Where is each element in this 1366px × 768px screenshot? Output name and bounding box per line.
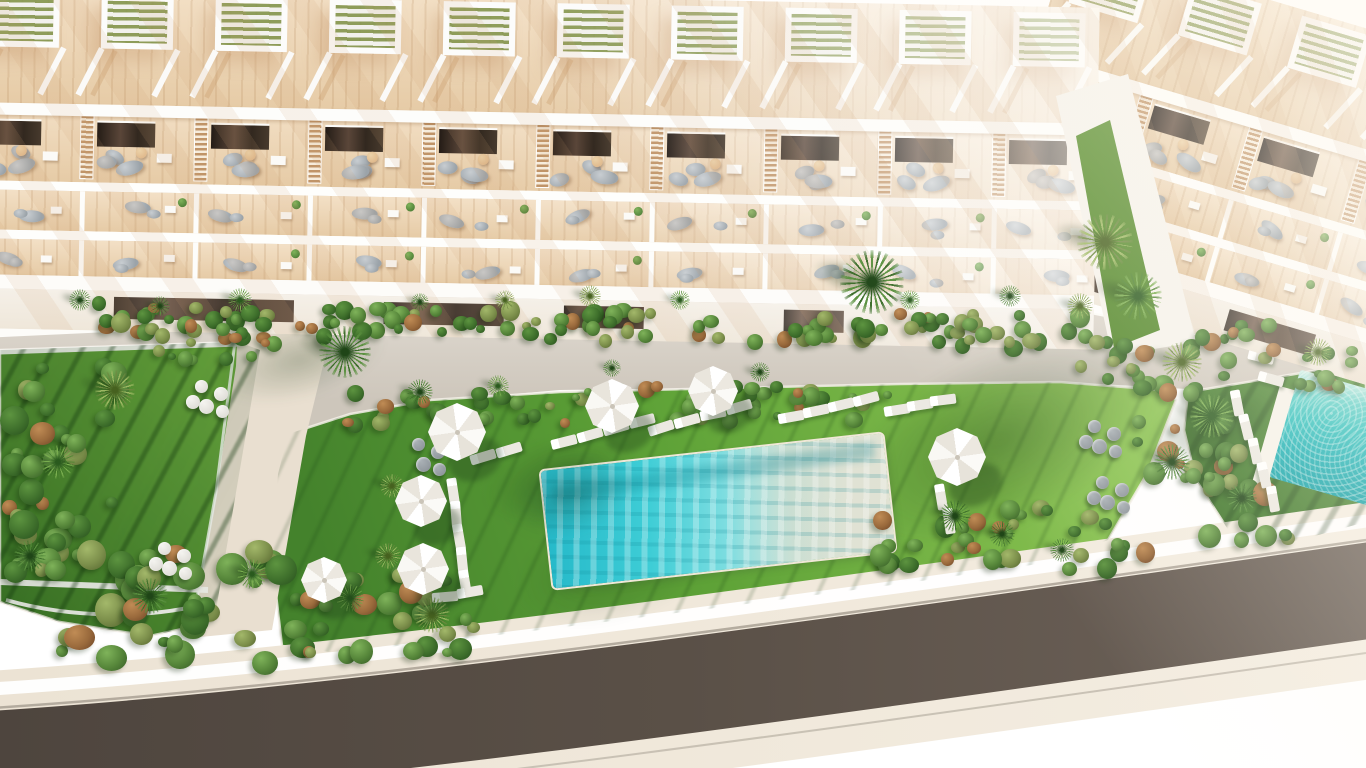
palm-canopy — [69, 289, 91, 311]
shrub — [770, 381, 784, 393]
pergola — [215, 0, 288, 52]
palm-tree — [411, 293, 429, 311]
shrub — [1198, 524, 1221, 548]
palm-canopy — [603, 359, 621, 377]
palm-tree — [750, 362, 770, 382]
egg-chair — [438, 161, 458, 174]
balcony-divider — [78, 240, 84, 280]
privacy-screen — [992, 134, 1005, 196]
shrub — [252, 651, 278, 675]
balcony-table — [1295, 234, 1308, 244]
egg-chair — [0, 162, 7, 178]
garden-pouf — [186, 395, 200, 409]
palm-tree — [1227, 483, 1257, 513]
shrub — [1132, 415, 1146, 429]
privacy-screen — [194, 118, 207, 180]
garden-pouf — [1117, 501, 1130, 514]
balcony-plant — [976, 213, 985, 222]
palm-tree — [69, 289, 91, 311]
garden-pouf — [179, 567, 192, 580]
shrub — [545, 402, 555, 410]
pergola-post-shadow — [1265, 72, 1302, 112]
palm-canopy — [1077, 214, 1133, 270]
balcony-chair — [243, 262, 257, 271]
shrub — [845, 412, 863, 427]
pergola-post — [987, 65, 1016, 114]
shrub — [1255, 525, 1277, 547]
palm-tree — [900, 290, 920, 310]
balcony-table — [733, 267, 744, 274]
shrub — [1000, 549, 1022, 567]
balcony-table — [281, 262, 292, 269]
privacy-screen — [536, 125, 549, 187]
balcony-chair — [462, 270, 476, 279]
balcony-chair — [587, 269, 601, 278]
parasol-pole — [421, 567, 426, 572]
shrub — [747, 334, 763, 350]
dining-table — [157, 154, 172, 163]
terrace-door — [553, 129, 611, 156]
shrub — [229, 333, 241, 344]
palm-tree — [132, 578, 168, 614]
dining-table — [727, 165, 742, 174]
balcony-plant — [862, 211, 871, 220]
pergola — [1178, 0, 1262, 55]
palm-canopy — [670, 290, 690, 310]
balcony-divider — [649, 202, 655, 242]
palm-tree — [579, 285, 601, 307]
garden-pouf — [1109, 445, 1122, 458]
shrub — [1234, 532, 1249, 548]
balcony-divider — [193, 193, 199, 233]
palm-tree — [1067, 293, 1093, 319]
palm-tree — [237, 559, 267, 589]
pergola-post — [151, 49, 180, 98]
shrub — [185, 319, 198, 332]
shrub — [703, 315, 719, 328]
balcony-daybed — [666, 214, 694, 233]
shrub — [464, 317, 477, 330]
parasol-pole — [419, 499, 424, 504]
pergola-post-shadow — [0, 47, 4, 94]
shrub — [870, 544, 891, 566]
balcony-table — [1283, 283, 1296, 293]
pergola-post — [1323, 87, 1363, 129]
shrub — [975, 327, 992, 343]
parasol — [428, 403, 486, 461]
palm-canopy — [95, 370, 135, 410]
dining-table — [954, 169, 969, 178]
pergola — [329, 0, 402, 54]
shrub — [167, 635, 183, 652]
shrub — [1075, 360, 1087, 373]
palm-tree — [1154, 444, 1190, 480]
shrub — [219, 352, 233, 366]
balcony-divider — [306, 245, 312, 285]
palm-canopy — [150, 296, 170, 316]
balcony-divider — [420, 247, 426, 287]
balcony-chair — [679, 274, 693, 283]
palm-canopy — [14, 540, 46, 572]
pergola-post — [1360, 98, 1366, 140]
palm-tree — [1304, 338, 1332, 366]
shrub — [964, 335, 976, 345]
round-table — [591, 156, 602, 167]
shrub — [638, 329, 653, 343]
palm-tree — [670, 290, 690, 310]
shrub — [168, 353, 176, 360]
shrub — [932, 335, 946, 349]
shrub — [805, 330, 823, 346]
pergola — [671, 5, 744, 60]
palm-tree — [487, 375, 509, 397]
garden-pouf — [158, 542, 171, 555]
pergola — [899, 10, 972, 65]
palm-tree — [407, 379, 433, 405]
shrub — [437, 327, 447, 337]
daybed — [341, 164, 371, 181]
balcony-table — [40, 255, 51, 262]
balcony-divider — [1313, 279, 1329, 319]
pergola-post — [759, 60, 788, 109]
privacy-screen — [878, 131, 891, 193]
balcony-plant — [178, 198, 187, 207]
balcony-divider — [421, 198, 427, 238]
shrub — [30, 422, 55, 445]
balcony-daybed — [1004, 218, 1032, 237]
privacy-screen — [308, 121, 321, 183]
balcony-plant — [1305, 279, 1316, 290]
palm-tree — [1114, 272, 1162, 320]
pergola-post — [189, 49, 218, 98]
palm-canopy — [1154, 444, 1190, 480]
pergola-post — [873, 62, 902, 111]
palm-canopy — [989, 521, 1015, 547]
pergola-post — [75, 47, 104, 96]
egg-chair — [97, 155, 117, 169]
round-table — [367, 152, 378, 163]
garden-pouf — [412, 438, 425, 451]
balcony-divider — [1327, 232, 1343, 272]
pergola — [785, 8, 858, 63]
garden-pouf — [416, 457, 431, 472]
balcony-divider — [1204, 246, 1220, 286]
balcony-plant — [634, 207, 643, 216]
parasol-pole — [610, 404, 615, 409]
shrub — [904, 321, 919, 335]
palm-canopy — [487, 375, 509, 397]
palm-tree — [41, 445, 75, 479]
shrub — [1345, 357, 1357, 367]
round-table — [16, 145, 27, 156]
daybed — [1173, 149, 1204, 177]
garden-pouf — [199, 399, 214, 414]
parasol-pole — [711, 389, 716, 394]
shrub — [983, 549, 1002, 570]
shrub — [1097, 558, 1117, 579]
shrub — [1073, 548, 1089, 563]
balcony-chair — [474, 221, 488, 230]
garden-pouf — [1088, 420, 1101, 433]
shrub — [430, 305, 442, 317]
garden-pouf — [1092, 439, 1107, 454]
palm-tree — [228, 288, 252, 312]
balcony-daybed — [798, 224, 825, 237]
dining-table — [499, 160, 514, 169]
balcony-table — [497, 215, 508, 222]
balcony-table — [509, 266, 520, 273]
privacy-screen — [422, 123, 435, 185]
palm-canopy — [750, 362, 770, 382]
balcony-divider — [192, 242, 198, 282]
balcony-divider — [535, 200, 541, 240]
palm-canopy — [41, 445, 75, 479]
shrub — [313, 622, 329, 636]
garden-pouf — [1115, 483, 1129, 497]
balcony-table — [1076, 275, 1087, 282]
garden-pouf — [433, 463, 446, 476]
round-table — [1047, 165, 1058, 176]
shrub — [261, 339, 270, 347]
dining-table — [271, 156, 286, 165]
balcony-chair — [1055, 277, 1069, 286]
shrub — [1102, 373, 1114, 385]
daybed — [921, 173, 952, 195]
terrace-door — [1009, 138, 1067, 165]
shrub — [1170, 424, 1180, 433]
garden-pouf — [1079, 435, 1093, 449]
balcony-plant — [633, 256, 642, 265]
shrub — [342, 418, 354, 428]
balcony-divider — [534, 249, 540, 289]
balcony-divider — [762, 253, 768, 293]
balcony-daybed — [1337, 294, 1365, 319]
garden-pouf — [149, 557, 163, 571]
shrub — [1107, 356, 1120, 368]
palm-tree — [1190, 394, 1234, 438]
pergola-post — [37, 46, 66, 95]
palm-tree — [840, 250, 904, 314]
shrub — [936, 313, 949, 325]
balcony-table — [281, 212, 292, 219]
privacy-screen — [1342, 160, 1366, 223]
palm-canopy — [237, 559, 267, 589]
palm-tree — [495, 290, 515, 310]
garden-pouf — [1100, 495, 1115, 510]
palm-tree — [1050, 538, 1074, 562]
terrace-door — [895, 136, 953, 163]
parasol — [301, 557, 347, 603]
shrub — [856, 319, 874, 338]
dining-table — [385, 158, 400, 167]
balcony-table — [623, 212, 634, 219]
shrub — [544, 333, 557, 345]
dining-table — [43, 151, 58, 160]
shrub — [899, 557, 919, 573]
palm-canopy — [1304, 338, 1332, 366]
round-table — [933, 163, 944, 174]
balcony-chair — [365, 264, 379, 273]
balcony-divider — [307, 196, 313, 236]
pergola — [101, 0, 174, 50]
pergola-post — [417, 54, 446, 103]
shrub — [1022, 333, 1041, 349]
dining-table — [1201, 151, 1218, 164]
daybed — [805, 174, 833, 189]
shrub — [1014, 310, 1026, 321]
shrub — [1317, 370, 1335, 387]
balcony-table — [969, 223, 980, 230]
daybed — [231, 163, 259, 178]
garden-pouf — [1096, 476, 1109, 489]
pergola — [443, 1, 516, 56]
terrace-door — [781, 134, 839, 161]
shrub — [941, 553, 953, 566]
balcony-chair — [147, 209, 161, 218]
shrub — [350, 307, 366, 324]
palm-canopy — [840, 250, 904, 314]
balcony-chair — [9, 258, 23, 267]
palm-tree — [1077, 214, 1133, 270]
palm-canopy — [900, 290, 920, 310]
balcony-plant — [291, 249, 300, 258]
shrub — [1099, 518, 1112, 529]
shrub — [712, 332, 725, 344]
palm-canopy — [1227, 483, 1257, 513]
shrub — [377, 399, 394, 413]
shrub — [92, 296, 106, 311]
pergola-post — [531, 56, 560, 105]
balcony-divider — [877, 206, 883, 246]
balcony-plant — [406, 202, 415, 211]
shrub — [1238, 328, 1255, 342]
garden-pouf — [216, 405, 229, 418]
shrub — [369, 302, 386, 317]
shrub — [372, 415, 390, 431]
balcony-chair — [368, 215, 382, 224]
dining-table — [841, 167, 856, 176]
parasol — [688, 366, 738, 416]
shrub — [95, 410, 115, 426]
shrub — [189, 302, 203, 314]
palm-canopy — [407, 379, 433, 405]
palm-tree — [150, 296, 170, 316]
shrub — [1000, 500, 1020, 520]
shrub — [183, 599, 205, 618]
daybed — [7, 155, 38, 176]
balcony-table — [386, 260, 397, 267]
shrub — [1228, 327, 1239, 338]
palm-tree — [319, 326, 371, 378]
palm-tree — [999, 285, 1021, 307]
shrub — [106, 497, 118, 508]
balcony-plant — [520, 205, 529, 214]
pergola-post — [645, 58, 674, 107]
shrub — [1081, 510, 1099, 525]
balcony-daybed — [1355, 258, 1366, 278]
garden-pouf — [162, 561, 177, 576]
palm-tree — [1162, 342, 1202, 382]
pergola-post — [493, 55, 522, 104]
balcony-chair — [830, 220, 844, 229]
pergola — [1013, 12, 1086, 67]
palm-canopy — [1162, 342, 1202, 382]
privacy-screen — [650, 127, 663, 189]
shrub — [55, 511, 75, 529]
shrub — [64, 625, 95, 650]
shrub — [178, 351, 193, 366]
shrub — [394, 324, 403, 334]
round-table — [136, 147, 147, 158]
balcony-table — [1188, 201, 1201, 211]
parasol-pole — [455, 430, 460, 435]
palm-canopy — [375, 543, 401, 569]
palm-canopy — [579, 285, 601, 307]
balcony-plant — [405, 251, 414, 260]
palm-canopy — [411, 293, 429, 311]
balcony-plant — [975, 262, 984, 271]
balcony-plant — [1196, 247, 1207, 258]
palm-canopy — [319, 326, 371, 378]
palm-canopy — [1114, 272, 1162, 320]
egg-chair — [548, 171, 571, 189]
parasol — [928, 428, 986, 486]
palm-canopy — [1050, 538, 1074, 562]
balcony-table — [735, 217, 746, 224]
shrub — [322, 304, 335, 315]
shrub — [817, 311, 832, 325]
shrub — [1041, 505, 1053, 516]
balcony-chair — [566, 216, 580, 225]
round-table — [710, 158, 721, 169]
pergola-post — [607, 57, 636, 106]
shrub — [744, 382, 760, 395]
palm-canopy — [495, 290, 515, 310]
balcony-chair — [1362, 315, 1366, 328]
garden-pouf — [195, 380, 208, 393]
shrub — [130, 623, 154, 644]
balcony-table — [388, 210, 399, 217]
pergola — [0, 0, 60, 48]
shrub — [0, 406, 29, 435]
shrub — [1117, 338, 1133, 354]
dining-table — [613, 162, 628, 171]
garden-pouf — [1087, 491, 1101, 505]
shrub — [449, 638, 472, 660]
shrub — [216, 323, 230, 337]
balcony-plant — [1319, 232, 1330, 243]
palm-canopy — [1190, 394, 1234, 438]
pergola — [557, 3, 630, 58]
shrub — [1126, 363, 1135, 373]
shrub — [555, 324, 567, 336]
shrub — [1218, 371, 1230, 381]
shrub — [962, 318, 978, 331]
balcony-chair — [930, 230, 944, 239]
palm-tree — [375, 543, 401, 569]
shrub — [628, 308, 645, 323]
palm-tree — [14, 540, 46, 572]
shrub — [96, 645, 127, 670]
shrub — [23, 381, 46, 401]
terrace-door — [439, 127, 497, 154]
shrub — [77, 540, 106, 570]
parasol-pole — [322, 578, 327, 583]
pergola-post — [1214, 55, 1254, 97]
terrace-door — [97, 120, 155, 147]
shrub — [40, 403, 55, 416]
pergola-post — [949, 64, 978, 113]
